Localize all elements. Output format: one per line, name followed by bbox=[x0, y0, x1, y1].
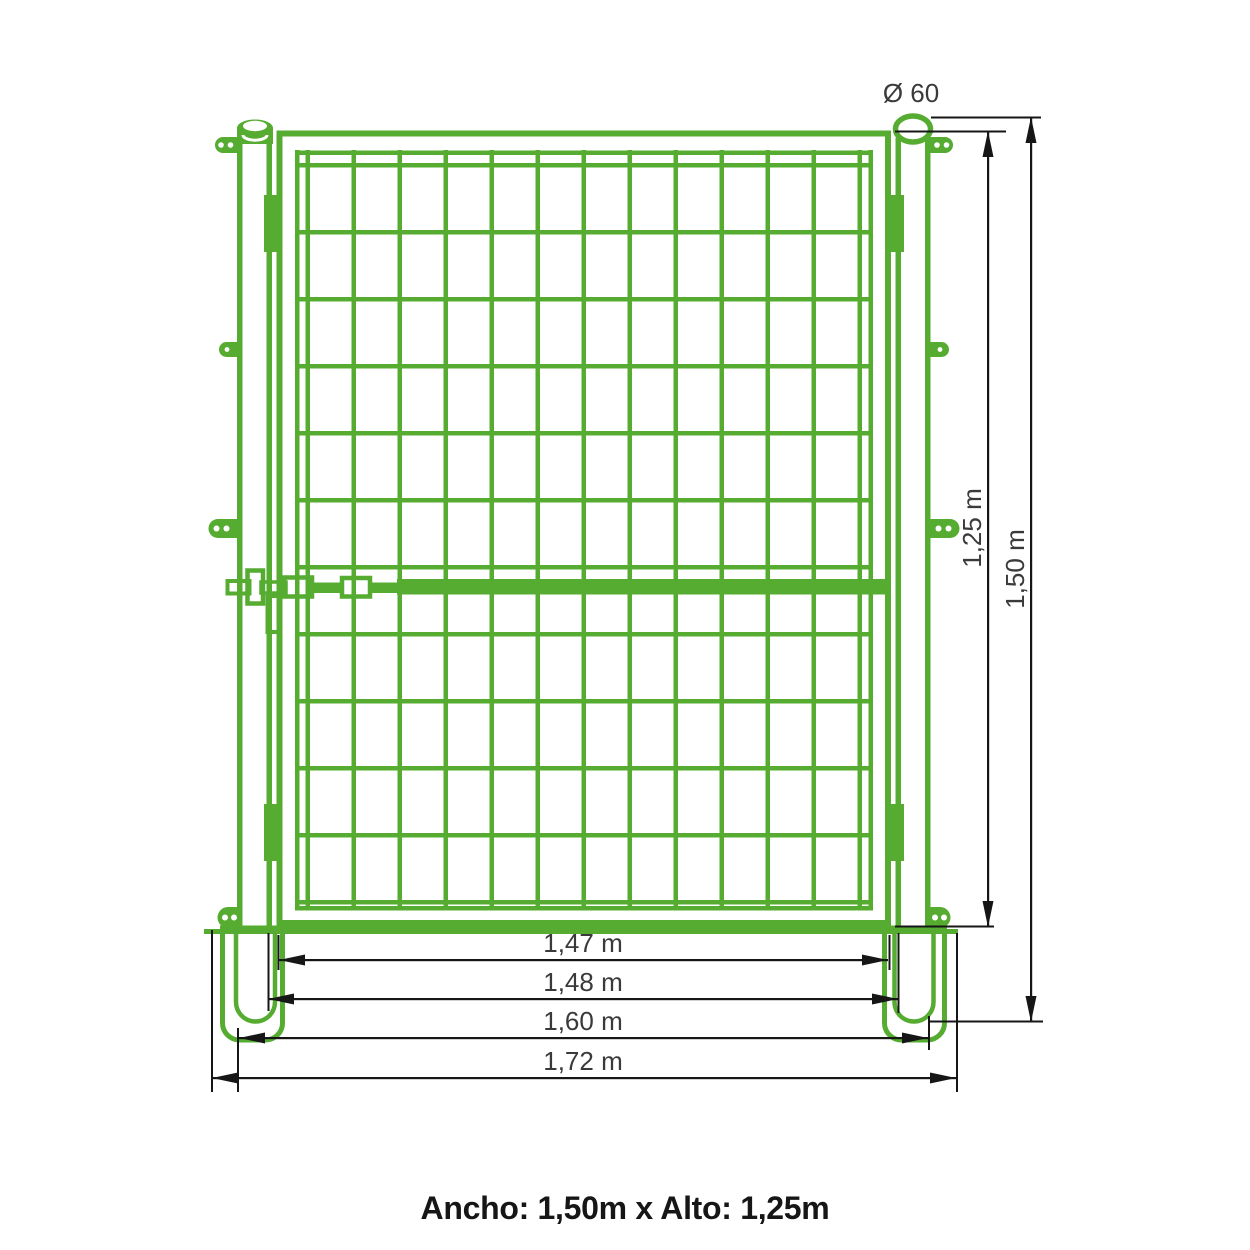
extension-tick bbox=[278, 935, 280, 970]
lug-hole bbox=[932, 915, 938, 921]
lug-hole bbox=[218, 142, 224, 148]
extension-tick bbox=[898, 933, 900, 1013]
left-post-cap-opening bbox=[243, 121, 267, 131]
arrowhead bbox=[212, 1073, 238, 1084]
mesh-wire-horizontal bbox=[295, 151, 873, 156]
lug-hole bbox=[934, 142, 940, 148]
mesh-wire-horizontal bbox=[295, 163, 873, 168]
lug-hole bbox=[941, 915, 947, 921]
left-post-right-edge bbox=[267, 140, 273, 930]
mesh-wire-vertical bbox=[628, 150, 633, 910]
mesh-wire-horizontal bbox=[295, 230, 873, 235]
mesh-wire-vertical bbox=[536, 150, 541, 910]
label-gate-width: 1,47 m bbox=[543, 928, 623, 958]
diagram-svg: Ø 60 1,47 m 1,48 m 1,60 m 1,72 m 1,25 m … bbox=[0, 0, 1250, 1250]
extension-tick bbox=[956, 933, 958, 1092]
lug bbox=[929, 137, 953, 153]
lug-hole bbox=[222, 915, 228, 921]
mesh-wire-horizontal bbox=[295, 498, 873, 503]
mesh-wire-horizontal bbox=[295, 431, 873, 436]
mesh-panel bbox=[295, 150, 873, 911]
mesh-wire-horizontal bbox=[295, 766, 873, 771]
label-posts-width: 1,60 m bbox=[543, 1006, 623, 1036]
arrowhead bbox=[983, 901, 994, 927]
mesh-wire-horizontal bbox=[295, 699, 873, 704]
arrowhead bbox=[983, 131, 994, 157]
label-clear-width: 1,48 m bbox=[543, 967, 623, 997]
mesh-wire-vertical bbox=[674, 150, 679, 910]
latch-drop-rod bbox=[268, 596, 280, 632]
extension-tick bbox=[889, 935, 891, 970]
mesh-wire-horizontal bbox=[295, 906, 873, 911]
mesh-wire-vertical bbox=[766, 150, 771, 910]
extension-tick bbox=[211, 930, 213, 1092]
middle-rail bbox=[397, 579, 891, 595]
size-caption: Ancho: 1,50m x Alto: 1,25m bbox=[421, 1190, 830, 1226]
mesh-wire-horizontal bbox=[295, 833, 873, 838]
arrowhead bbox=[1026, 117, 1037, 143]
extension-tick bbox=[928, 1016, 930, 1050]
mesh-wire-vertical bbox=[306, 150, 311, 910]
label-footings-width: 1,72 m bbox=[543, 1046, 623, 1076]
lug-hole bbox=[214, 526, 220, 532]
extension-line bbox=[930, 1021, 1043, 1023]
dim-line-gate-width bbox=[279, 959, 888, 961]
gate-technical-drawing: Ø 60 1,47 m 1,48 m 1,60 m 1,72 m 1,25 m … bbox=[0, 0, 1250, 1250]
mesh-wire-vertical bbox=[869, 150, 874, 910]
left-post bbox=[209, 120, 274, 931]
dim-line-posts-width bbox=[239, 1037, 928, 1039]
arrowhead bbox=[930, 1073, 956, 1084]
lug-hole bbox=[936, 526, 942, 532]
left-post-lugs bbox=[209, 137, 240, 928]
extension-line bbox=[895, 926, 994, 928]
arrowhead bbox=[1026, 996, 1037, 1022]
right-post-cap-opening bbox=[896, 116, 931, 142]
lug-hole bbox=[228, 142, 234, 148]
mesh-wire-vertical bbox=[398, 150, 403, 910]
lug-hole bbox=[938, 347, 943, 352]
mesh-wire-vertical bbox=[490, 150, 495, 910]
lug-hole bbox=[225, 347, 230, 352]
latch-bar bbox=[370, 583, 399, 594]
mesh-wire-horizontal bbox=[295, 632, 873, 637]
lug-hole bbox=[224, 526, 230, 532]
dim-line-gate-height bbox=[987, 132, 989, 926]
lug bbox=[929, 519, 960, 538]
mesh-wire-horizontal bbox=[295, 565, 873, 570]
mesh-wire-vertical bbox=[582, 150, 587, 910]
extension-line bbox=[931, 117, 1041, 119]
mesh-wire-vertical bbox=[444, 150, 449, 910]
label-post-diameter: Ø 60 bbox=[883, 78, 939, 108]
right-post-left-edge bbox=[896, 138, 902, 930]
mesh-wire-horizontal bbox=[295, 297, 873, 302]
mesh-wire-horizontal bbox=[295, 900, 873, 905]
mesh-wire-vertical bbox=[858, 150, 863, 910]
dim-line-footings-width bbox=[212, 1077, 956, 1079]
label-post-height: 1,50 m bbox=[1000, 529, 1030, 609]
latch-assembly bbox=[228, 571, 400, 633]
mesh-wire-vertical bbox=[720, 150, 725, 910]
latch-bar bbox=[312, 583, 343, 594]
dimension-lines bbox=[211, 117, 1043, 1093]
mesh-wire-vertical bbox=[352, 150, 357, 910]
mesh-wire-vertical bbox=[812, 150, 817, 910]
dim-line-clear-width bbox=[268, 998, 898, 1000]
frame-top-bar bbox=[278, 131, 891, 137]
lug-hole bbox=[944, 142, 950, 148]
extension-line bbox=[895, 131, 1006, 133]
lug-hole bbox=[231, 915, 237, 921]
mesh-wire-horizontal bbox=[295, 364, 873, 369]
lug-hole bbox=[946, 526, 952, 532]
label-gate-height: 1,25 m bbox=[957, 488, 987, 568]
right-post-lugs bbox=[929, 137, 960, 928]
right-post bbox=[896, 116, 960, 930]
right-post-underground bbox=[895, 929, 934, 1022]
dim-line-post-height bbox=[1030, 118, 1032, 1021]
mesh-wire-vertical bbox=[295, 150, 300, 910]
